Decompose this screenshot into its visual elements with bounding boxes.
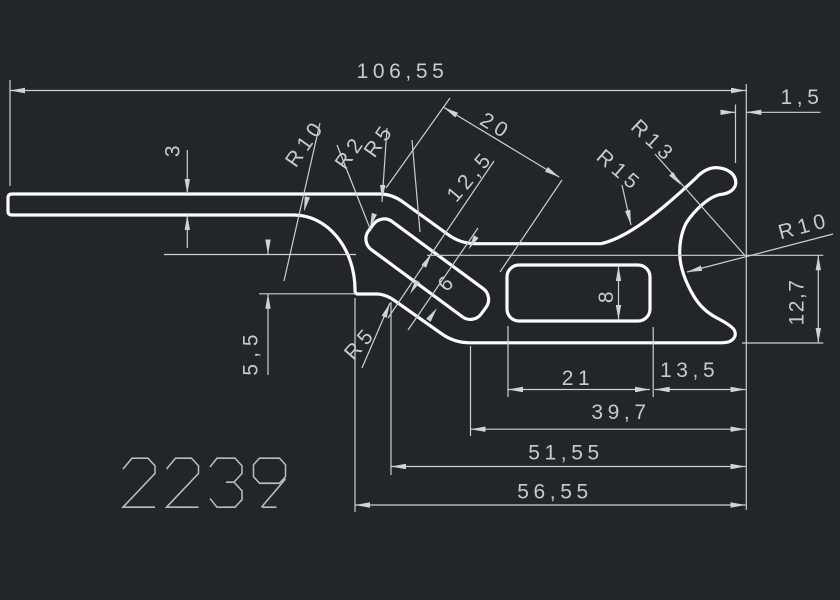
- svg-text:1,5: 1,5: [781, 86, 824, 109]
- svg-text:13,5: 13,5: [660, 359, 719, 382]
- svg-text:5,5: 5,5: [240, 328, 263, 375]
- svg-text:3: 3: [162, 141, 185, 157]
- svg-text:106,55: 106,55: [357, 60, 449, 83]
- svg-text:51,55: 51,55: [528, 442, 604, 465]
- svg-text:39,7: 39,7: [591, 401, 650, 424]
- svg-text:8: 8: [595, 287, 618, 303]
- svg-text:12,7: 12,7: [786, 279, 809, 326]
- svg-text:56,55: 56,55: [517, 481, 593, 504]
- svg-text:21: 21: [562, 367, 595, 390]
